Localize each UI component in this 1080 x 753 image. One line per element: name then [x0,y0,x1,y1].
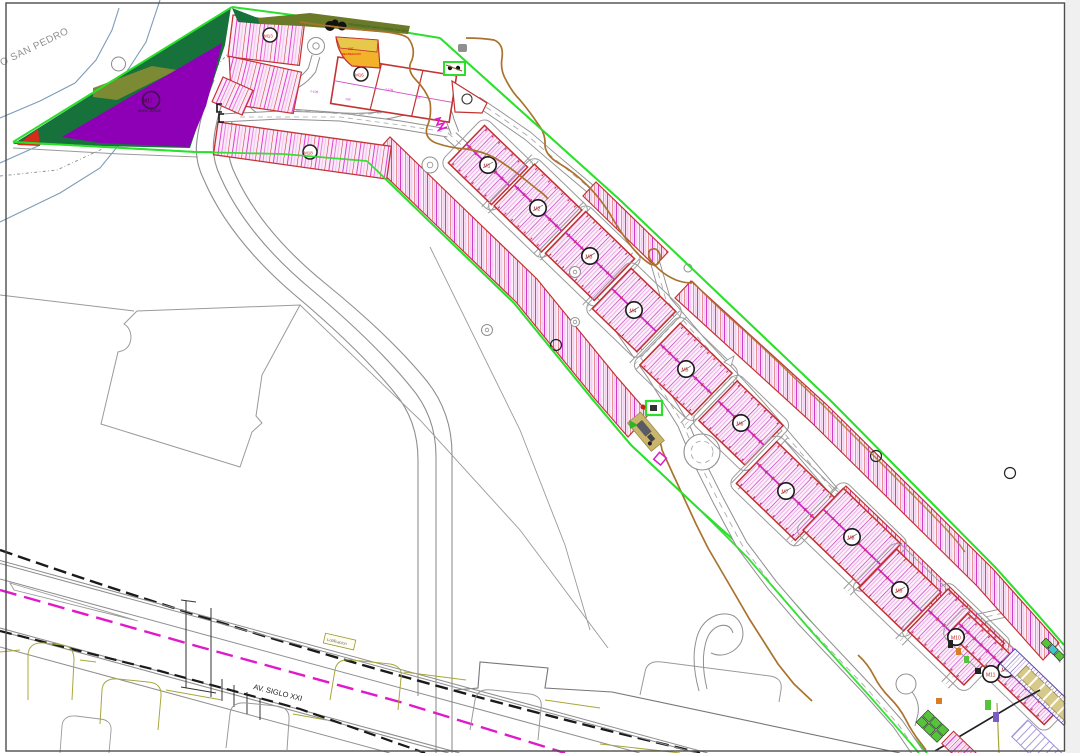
svg-text:M11: M11 [986,673,996,679]
svg-text:M18: M18 [304,151,313,156]
svg-text:M8: M8 [848,536,855,542]
svg-text:RECREACION: RECREACION [342,52,361,56]
svg-text:M9: M9 [896,589,903,595]
svg-text:M1: M1 [484,164,491,170]
svg-text:AREA VERDE: AREA VERDE [138,109,162,113]
svg-text:M7: M7 [782,490,789,496]
svg-text:M5: M5 [682,368,689,374]
svg-text:108: 108 [345,97,351,102]
svg-text:M3: M3 [586,255,593,261]
svg-text:M13: M13 [264,34,273,39]
svg-text:109: 109 [415,95,421,100]
svg-text:107: 107 [348,47,354,51]
svg-text:M6: M6 [737,422,744,428]
svg-text:M16: M16 [355,73,364,78]
svg-text:M4: M4 [630,309,637,315]
svg-text:M17: M17 [143,99,153,105]
svg-text:M2: M2 [534,207,541,213]
